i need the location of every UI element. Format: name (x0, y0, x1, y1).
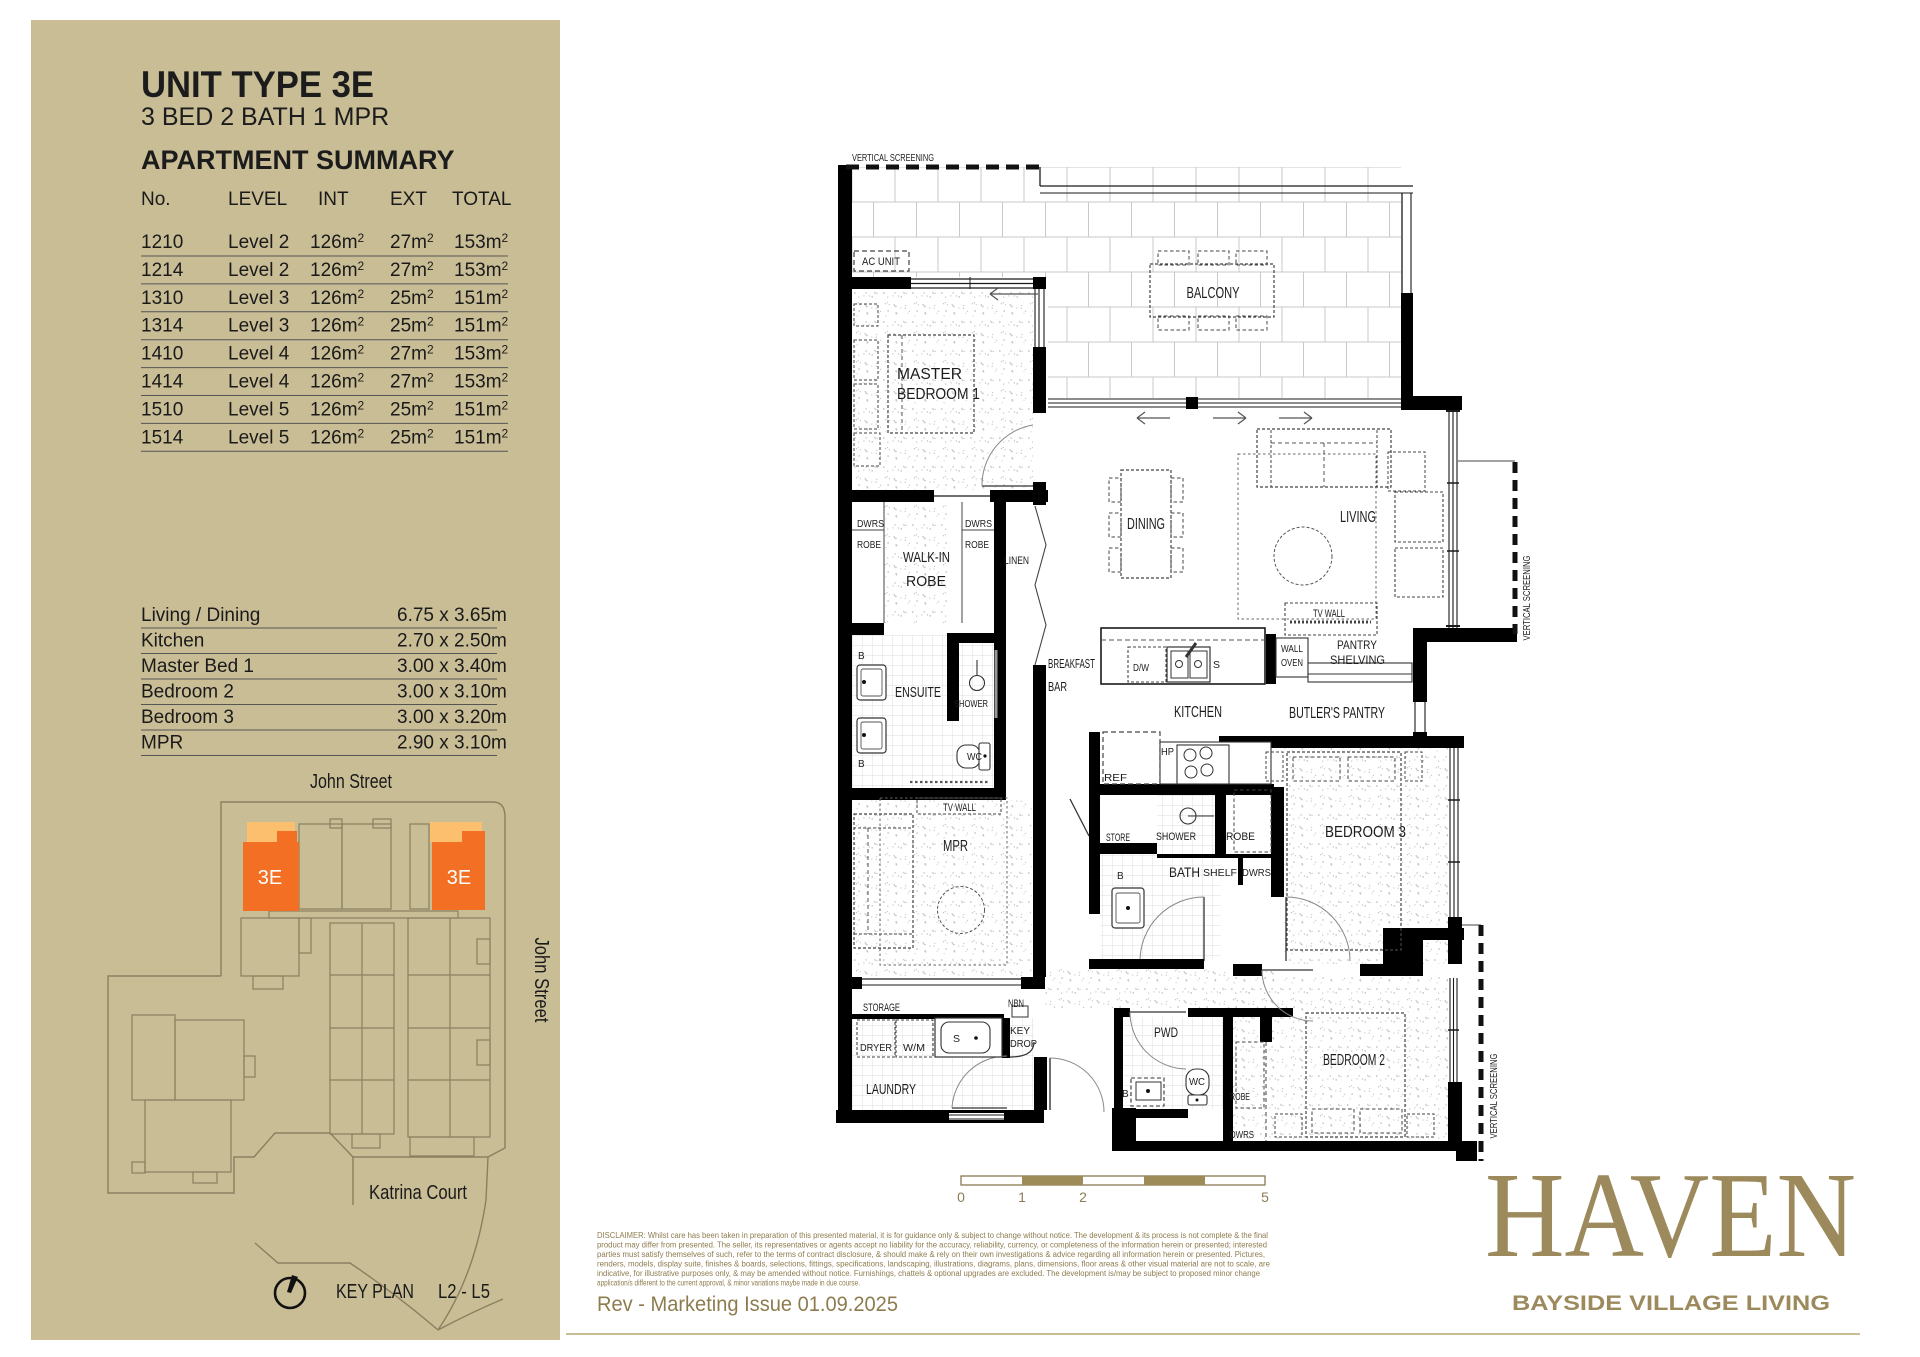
svg-text:151m2: 151m2 (454, 426, 509, 448)
svg-text:1514: 1514 (141, 427, 184, 448)
svg-text:0: 0 (957, 1189, 965, 1205)
svg-text:INT: INT (318, 189, 349, 210)
svg-text:VERTICAL SCREENING: VERTICAL SCREENING (852, 152, 934, 164)
svg-text:TOTAL: TOTAL (452, 189, 511, 210)
svg-text:Master Bed 1: Master Bed 1 (141, 656, 254, 677)
svg-text:D/W: D/W (1133, 662, 1149, 674)
svg-text:LIVING: LIVING (1340, 509, 1376, 526)
svg-text:ENSUITE: ENSUITE (895, 684, 941, 701)
svg-text:DROP: DROP (1010, 1038, 1037, 1050)
svg-text:Living / Dining: Living / Dining (141, 605, 260, 626)
svg-text:BALCONY: BALCONY (1187, 285, 1240, 302)
svg-text:1410: 1410 (141, 344, 183, 365)
svg-text:MASTER: MASTER (897, 366, 962, 383)
svg-text:153m2: 153m2 (454, 231, 509, 253)
svg-text:126m2: 126m2 (310, 398, 365, 420)
svg-text:126m2: 126m2 (310, 259, 365, 281)
svg-text:LAUNDRY: LAUNDRY (866, 1081, 916, 1098)
svg-text:1: 1 (1018, 1189, 1026, 1205)
svg-text:153m2: 153m2 (454, 343, 509, 365)
svg-text:SHOWER: SHOWER (954, 699, 988, 710)
svg-text:B: B (1122, 1089, 1129, 1100)
svg-text:No.: No. (141, 189, 171, 210)
svg-text:ROBE: ROBE (965, 540, 989, 551)
svg-text:John Street: John Street (530, 938, 552, 1023)
svg-text:L2 - L5: L2 - L5 (438, 1281, 490, 1303)
svg-text:SHOWER: SHOWER (1156, 831, 1196, 843)
svg-text:SHELVING: SHELVING (1330, 653, 1385, 667)
svg-text:1414: 1414 (141, 372, 184, 393)
svg-text:MPR: MPR (943, 838, 968, 855)
svg-text:REF: REF (1104, 772, 1127, 784)
svg-text:VERTICAL SCREENING: VERTICAL SCREENING (1522, 555, 1533, 640)
svg-text:EXT: EXT (390, 189, 427, 210)
svg-text:ROBE: ROBE (1226, 831, 1255, 843)
svg-text:DRYER: DRYER (860, 1042, 892, 1054)
svg-text:PANTRY: PANTRY (1337, 638, 1377, 652)
svg-text:126m2: 126m2 (310, 343, 365, 365)
svg-text:W/M: W/M (903, 1042, 925, 1054)
svg-text:1314: 1314 (141, 316, 184, 337)
svg-text:S: S (1213, 659, 1220, 671)
svg-text:BEDROOM 1: BEDROOM 1 (897, 386, 980, 403)
svg-text:KEY PLAN: KEY PLAN (336, 1281, 414, 1303)
svg-text:DWRS: DWRS (1230, 1130, 1254, 1141)
svg-text:153m2: 153m2 (454, 371, 509, 393)
svg-text:126m2: 126m2 (310, 315, 365, 337)
svg-text:ROBE: ROBE (857, 540, 881, 551)
svg-text:LEVEL: LEVEL (228, 189, 287, 210)
svg-text:Level 4: Level 4 (228, 372, 290, 393)
svg-text:APARTMENT SUMMARY: APARTMENT SUMMARY (141, 145, 454, 175)
svg-text:BUTLER'S PANTRY: BUTLER'S PANTRY (1289, 705, 1385, 722)
svg-text:151m2: 151m2 (454, 315, 509, 337)
svg-text:SHELF: SHELF (1203, 868, 1237, 879)
svg-text:WALL: WALL (1281, 643, 1303, 655)
svg-text:DWRS: DWRS (1242, 868, 1271, 879)
svg-text:AC UNIT: AC UNIT (862, 256, 900, 268)
svg-text:STORAGE: STORAGE (863, 1002, 900, 1014)
svg-text:1210: 1210 (141, 232, 183, 253)
svg-text:B: B (1117, 871, 1124, 882)
svg-text:WALK-IN: WALK-IN (903, 549, 950, 566)
svg-text:KITCHEN: KITCHEN (1174, 704, 1222, 721)
svg-text:6.75 x 3.65m: 6.75 x 3.65m (397, 605, 507, 626)
svg-text:TV WALL: TV WALL (1313, 608, 1345, 620)
svg-text:153m2: 153m2 (454, 259, 509, 281)
svg-text:HP: HP (1161, 746, 1174, 758)
svg-text:product may differ from pres: product may differ from presented. The s… (597, 1241, 1267, 1250)
svg-text:ROBE: ROBE (1230, 1092, 1250, 1103)
svg-text:indicative, for illustrative: indicative, for illustrative purposes on… (597, 1269, 1261, 1278)
svg-text:NBN: NBN (1008, 998, 1024, 1010)
svg-text:MPR: MPR (141, 733, 183, 754)
svg-text:3.00 x 3.20m: 3.00 x 3.20m (397, 707, 507, 728)
svg-text:PWD: PWD (1154, 1024, 1178, 1040)
svg-text:BATH: BATH (1169, 864, 1200, 880)
svg-text:S: S (953, 1033, 960, 1045)
svg-text:BEDROOM 2: BEDROOM 2 (1323, 1052, 1385, 1069)
svg-text:B: B (858, 651, 865, 662)
svg-text:3E: 3E (447, 867, 471, 889)
svg-text:UNIT TYPE 3E: UNIT TYPE 3E (141, 64, 374, 105)
svg-text:parties must satisfy themselve: parties must satisfy themselves of such,… (597, 1250, 1265, 1259)
svg-text:DWRS: DWRS (965, 519, 992, 530)
svg-text:Bedroom 2: Bedroom 2 (141, 682, 234, 703)
svg-text:HAVEN: HAVEN (1485, 1148, 1856, 1283)
svg-text:Level 3: Level 3 (228, 316, 289, 337)
svg-text:126m2: 126m2 (310, 287, 365, 309)
svg-text:DINING: DINING (1127, 516, 1165, 533)
svg-text:BEDROOM 3: BEDROOM 3 (1325, 824, 1406, 841)
svg-text:STORE: STORE (1106, 832, 1130, 844)
svg-text:1214: 1214 (141, 260, 184, 281)
svg-text:KEY: KEY (1010, 1025, 1030, 1037)
svg-text:3.00 x 3.40m: 3.00 x 3.40m (397, 656, 507, 677)
svg-text:1310: 1310 (141, 288, 183, 309)
svg-text:126m2: 126m2 (310, 426, 365, 448)
svg-text:Level 5: Level 5 (228, 399, 289, 420)
svg-text:ROBE: ROBE (906, 573, 946, 590)
svg-text:1510: 1510 (141, 399, 183, 420)
svg-text:Kitchen: Kitchen (141, 631, 204, 652)
svg-text:3 BED 2 BATH 1 MPR: 3 BED 2 BATH 1 MPR (141, 103, 389, 131)
svg-text:application/s different to th: application/s different to the current a… (597, 1279, 860, 1288)
svg-text:B: B (858, 759, 865, 770)
svg-text:Level 3: Level 3 (228, 288, 289, 309)
svg-text:John Street: John Street (310, 771, 392, 793)
svg-text:Katrina Court: Katrina Court (369, 1182, 467, 1204)
svg-text:DISCLAIMER: Whilst care has be: DISCLAIMER: Whilst care has been taken i… (597, 1231, 1268, 1240)
svg-text:OVEN: OVEN (1281, 657, 1303, 669)
svg-text:LINEN: LINEN (1004, 555, 1029, 567)
svg-text:151m2: 151m2 (454, 398, 509, 420)
svg-text:VERTICAL SCREENING: VERTICAL SCREENING (1489, 1053, 1500, 1138)
svg-text:3.00 x 3.10m: 3.00 x 3.10m (397, 682, 507, 703)
svg-text:126m2: 126m2 (310, 231, 365, 253)
svg-text:TV WALL: TV WALL (943, 802, 976, 814)
svg-text:DWRS: DWRS (857, 519, 884, 530)
svg-text:Bedroom 3: Bedroom 3 (141, 707, 234, 728)
svg-text:BAR: BAR (1048, 679, 1067, 694)
svg-text:Level 4: Level 4 (228, 344, 290, 365)
svg-text:2.70 x 2.50m: 2.70 x 2.50m (397, 631, 507, 652)
svg-text:BAYSIDE VILLAGE LIVING: BAYSIDE VILLAGE LIVING (1512, 1292, 1830, 1315)
svg-text:151m2: 151m2 (454, 287, 509, 309)
svg-text:5: 5 (1261, 1189, 1269, 1205)
svg-text:126m2: 126m2 (310, 371, 365, 393)
svg-text:Level 2: Level 2 (228, 260, 289, 281)
svg-text:Level 5: Level 5 (228, 427, 289, 448)
svg-text:2.90 x 3.10m: 2.90 x 3.10m (397, 733, 507, 754)
svg-text:BREAKFAST: BREAKFAST (1048, 656, 1095, 671)
svg-text:WC: WC (967, 752, 982, 763)
svg-text:2: 2 (1079, 1189, 1087, 1205)
svg-text:Level 2: Level 2 (228, 232, 289, 253)
svg-text:WC: WC (1189, 1076, 1205, 1088)
svg-text:3E: 3E (258, 867, 282, 889)
svg-text:renders, models, display suite: renders, models, display suite, finishes… (597, 1260, 1271, 1269)
svg-text:Rev - Marketing Issue 01.09.: Rev - Marketing Issue 01.09.2025 (597, 1293, 898, 1316)
